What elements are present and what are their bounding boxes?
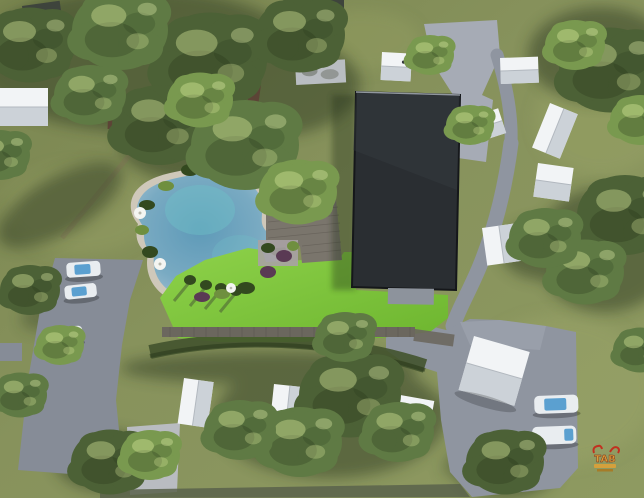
logo-banner: [594, 464, 616, 468]
tree: [0, 265, 62, 315]
site-plan-canvas: TAB: [0, 0, 644, 498]
logo-banner-sub: [597, 469, 613, 472]
cabin: [533, 163, 573, 202]
pond-teal-patch: [165, 185, 235, 235]
cabin: [0, 88, 48, 126]
car: [64, 260, 103, 283]
aerial-site-plan: TAB: [0, 0, 644, 498]
main-building: [352, 92, 460, 290]
roadside-pad: [0, 343, 22, 361]
car: [532, 394, 581, 419]
tree: [251, 0, 349, 73]
tree: [0, 373, 49, 418]
logo-text: TAB: [594, 454, 615, 465]
south-terrace: [388, 288, 434, 305]
cabin: [500, 57, 539, 84]
